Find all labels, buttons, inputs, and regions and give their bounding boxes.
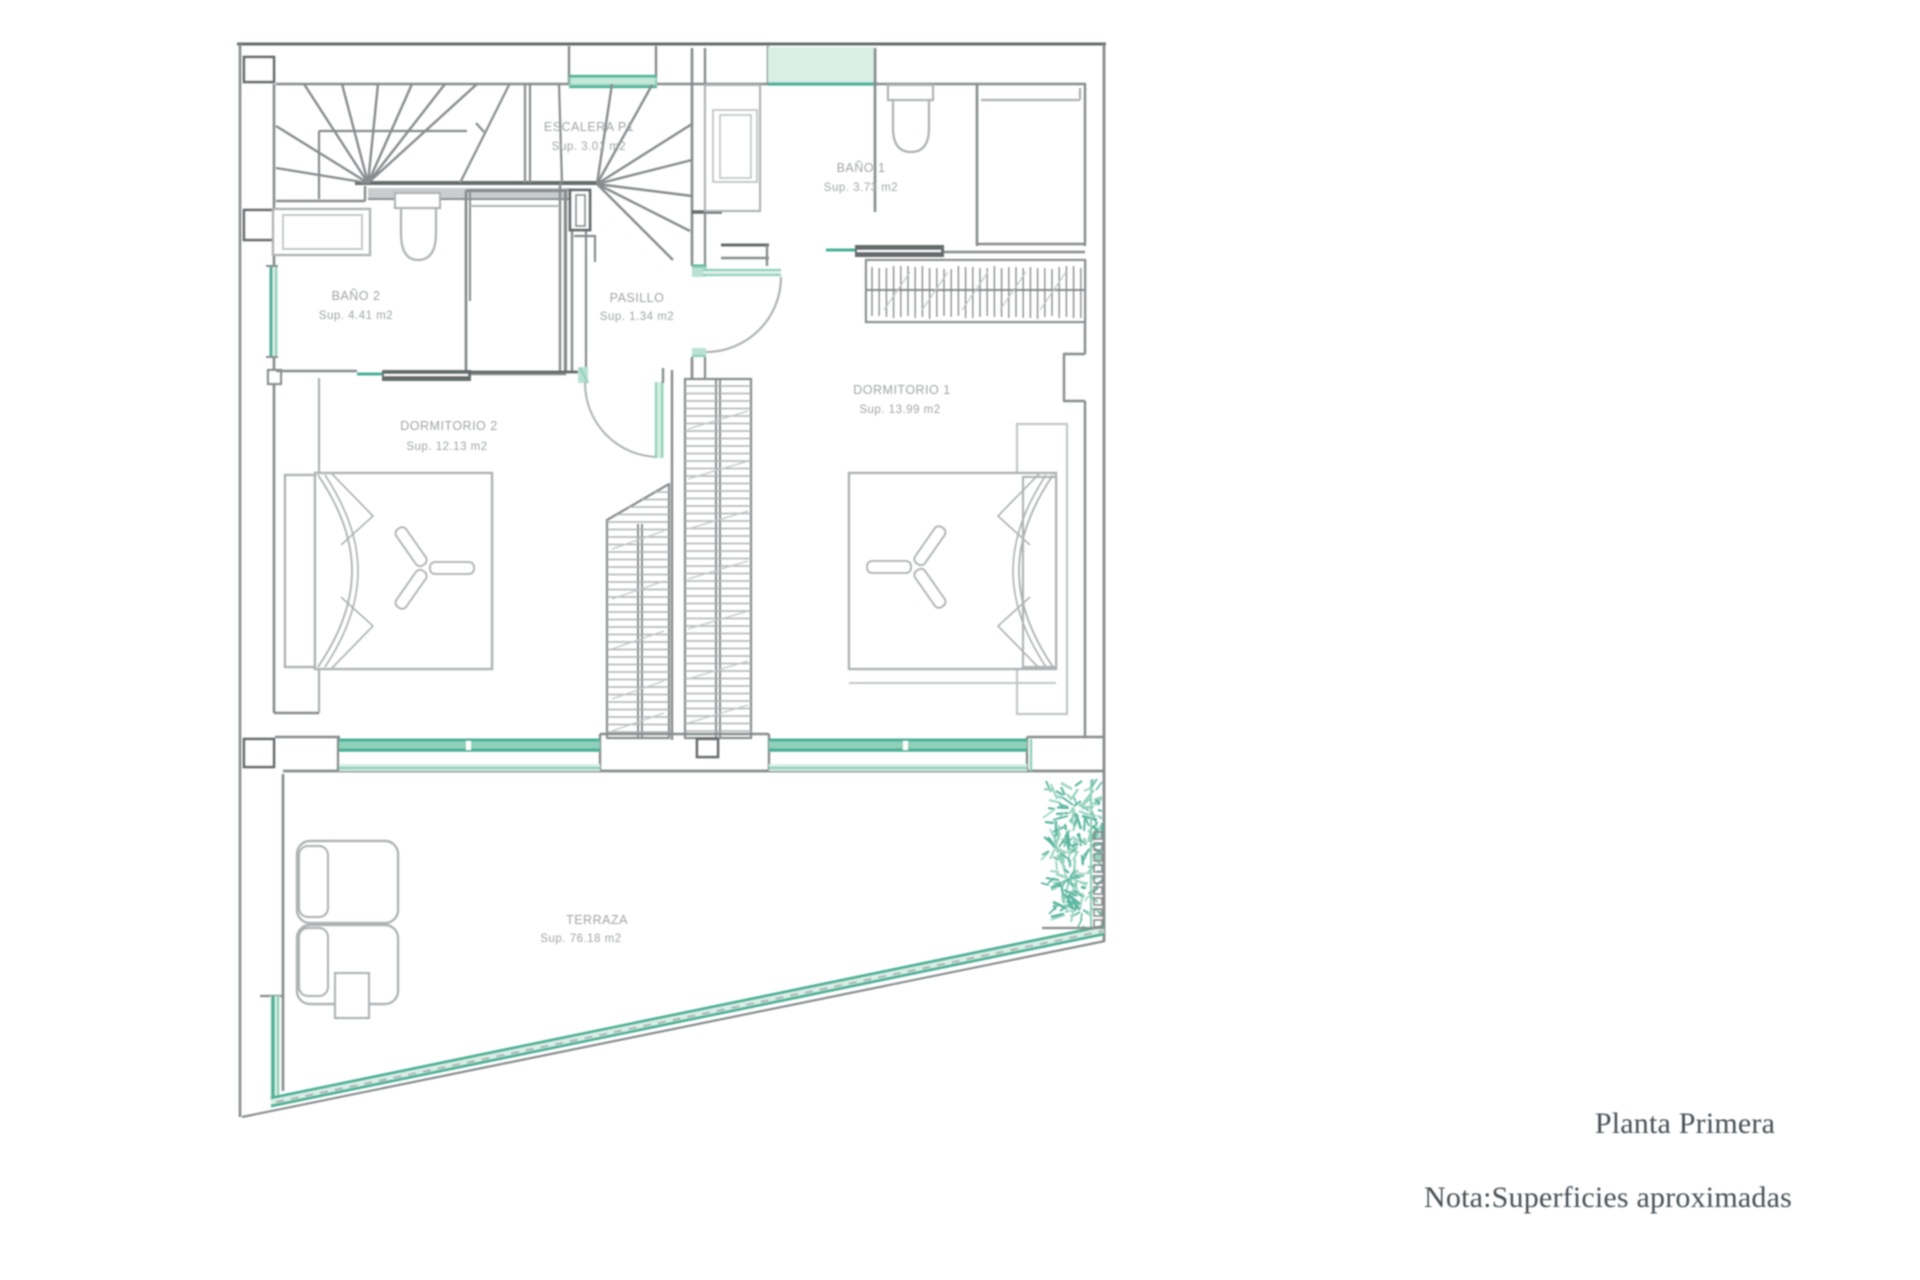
svg-text:Sup. 3.01 m2: Sup. 3.01 m2 bbox=[552, 141, 626, 153]
svg-text:DORMITORIO 1: DORMITORIO 1 bbox=[853, 383, 950, 397]
svg-text:BAÑO 1: BAÑO 1 bbox=[837, 161, 886, 175]
svg-text:Planta Primera: Planta Primera bbox=[1595, 1107, 1775, 1140]
svg-text:Sup. 12.13 m2: Sup. 12.13 m2 bbox=[406, 441, 487, 453]
svg-text:Sup. 4.41 m2: Sup. 4.41 m2 bbox=[319, 310, 393, 322]
svg-text:PASILLO: PASILLO bbox=[610, 291, 665, 305]
svg-text:Sup. 13.99 m2: Sup. 13.99 m2 bbox=[859, 404, 940, 416]
svg-text:ESCALERA P1: ESCALERA P1 bbox=[544, 120, 634, 134]
svg-text:Sup. 1.34 m2: Sup. 1.34 m2 bbox=[600, 311, 674, 323]
svg-text:TERRAZA: TERRAZA bbox=[566, 913, 628, 927]
svg-text:BAÑO 2: BAÑO 2 bbox=[332, 289, 381, 303]
svg-text:Nota:Superficies aproximadas: Nota:Superficies aproximadas bbox=[1424, 1181, 1792, 1214]
svg-text:Sup. 3.73 m2: Sup. 3.73 m2 bbox=[824, 182, 898, 194]
svg-text:Sup. 76.18 m2: Sup. 76.18 m2 bbox=[540, 933, 621, 945]
svg-text:DORMITORIO 2: DORMITORIO 2 bbox=[400, 419, 497, 433]
